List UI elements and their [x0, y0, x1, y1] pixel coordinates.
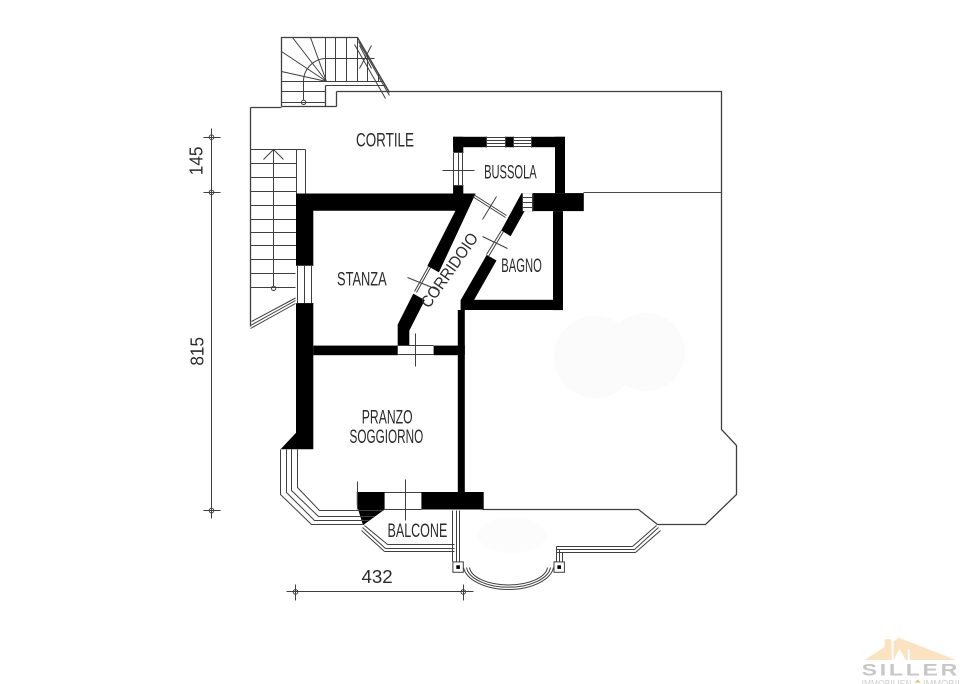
svg-text:IMMOBILIEN: IMMOBILIEN: [862, 679, 912, 684]
svg-text:BUSSOLA: BUSSOLA: [484, 162, 537, 183]
svg-text:BALCONE: BALCONE: [388, 521, 448, 542]
svg-text:CORTILE: CORTILE: [356, 131, 414, 152]
svg-text:STANZA: STANZA: [337, 269, 387, 290]
svg-text:815: 815: [188, 337, 208, 366]
svg-text:SILLER: SILLER: [862, 661, 961, 680]
svg-text:PRANZO: PRANZO: [362, 408, 413, 429]
svg-text:145: 145: [187, 147, 207, 176]
svg-text:SOGGIORNO: SOGGIORNO: [350, 427, 424, 448]
svg-text:IMMOBILI: IMMOBILI: [923, 679, 961, 684]
svg-text:BAGNO: BAGNO: [501, 256, 542, 277]
svg-text:432: 432: [362, 567, 393, 587]
